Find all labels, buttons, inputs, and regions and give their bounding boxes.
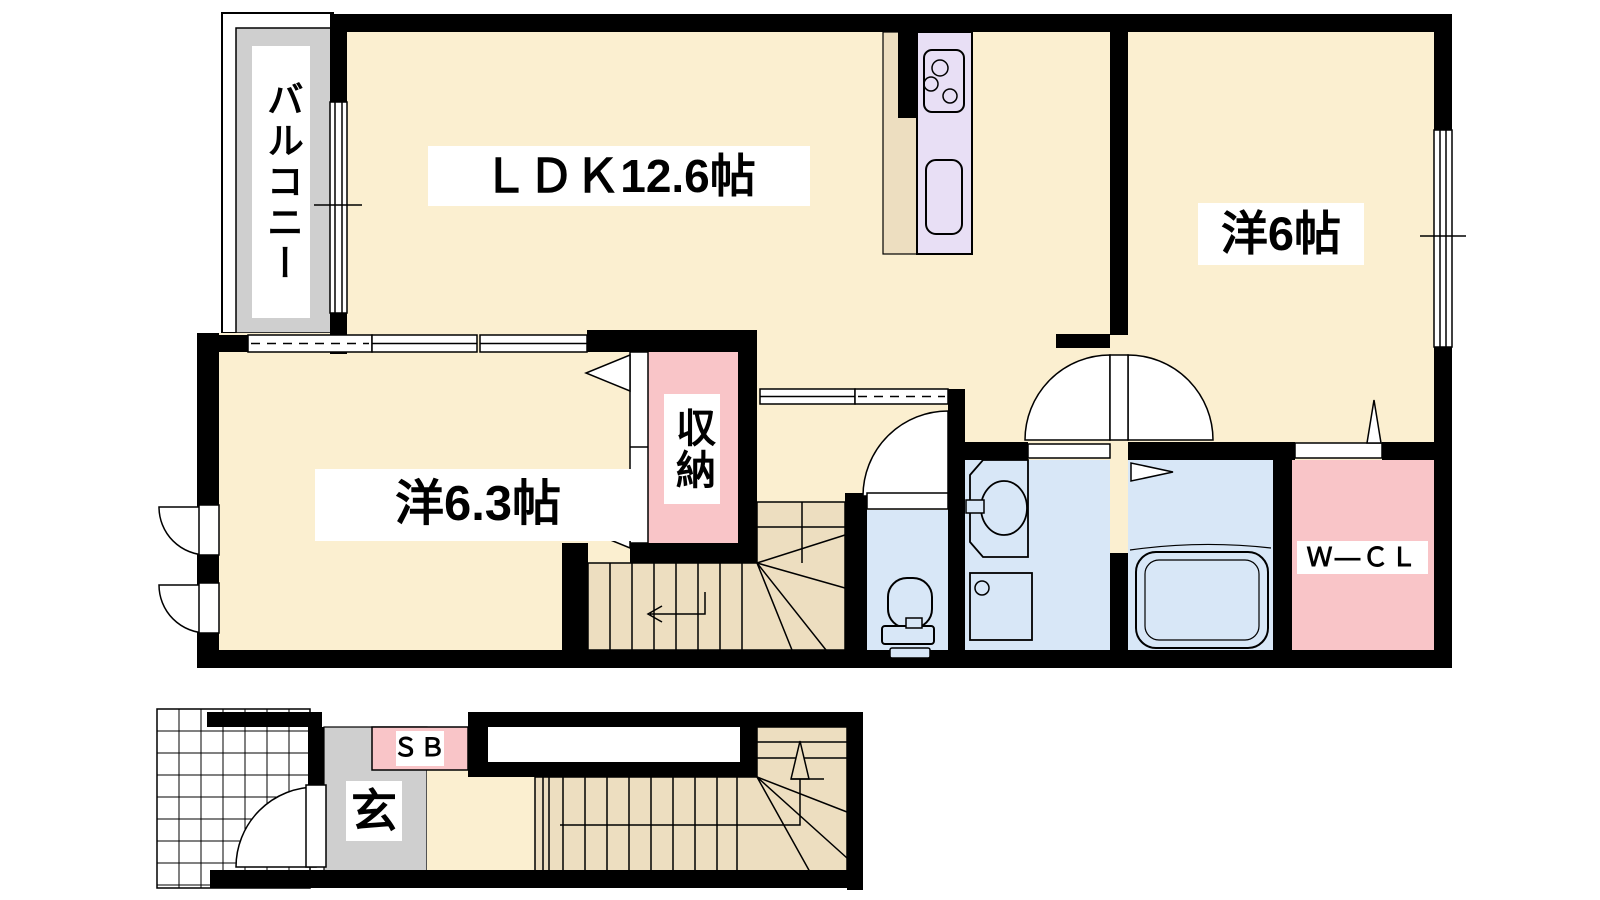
wall — [1273, 460, 1292, 650]
wall — [197, 650, 1452, 668]
wall — [488, 712, 857, 727]
exterior-door-leaf — [199, 505, 219, 555]
kitchen-sink-icon — [926, 160, 962, 234]
toilet-base — [890, 648, 930, 658]
floor-plan-canvas: バルコニー ＬＤＫ12.6帖 洋6帖 洋6.3帖 収納 Ｗ—ＣＬ ＳＢ 玄 — [0, 0, 1600, 900]
wall — [330, 14, 1452, 32]
faucet-icon — [966, 500, 984, 513]
wall — [948, 460, 965, 650]
wall — [1128, 442, 1295, 460]
wall — [587, 330, 757, 352]
door-opening — [1028, 444, 1110, 458]
storage-label: 収納 — [664, 394, 720, 504]
toilet-lid — [906, 618, 922, 628]
wall — [210, 870, 863, 888]
wall — [740, 727, 757, 777]
wall — [948, 389, 965, 460]
floor-1-plan — [157, 709, 863, 890]
entrance-door-leaf — [306, 785, 326, 867]
wall — [738, 330, 757, 563]
entrance-label: 玄 — [346, 781, 402, 841]
wall — [308, 727, 324, 787]
vanity-sink-icon — [981, 481, 1027, 535]
wall — [845, 493, 867, 650]
bathtub-icon — [1130, 544, 1271, 648]
balcony-window — [330, 102, 347, 313]
dashed-opening — [855, 389, 948, 404]
wcl-sliding-door — [1295, 443, 1382, 458]
balcony-label: バルコニー — [252, 46, 310, 318]
washroom-fixtures — [966, 460, 1032, 640]
wall — [1382, 442, 1434, 460]
kitchen-stove-icon — [924, 50, 964, 112]
washing-machine-knob — [975, 581, 989, 595]
wall — [330, 14, 347, 102]
ldk-label: ＬＤＫ12.6帖 — [428, 146, 810, 206]
floor-plan-drawing — [0, 0, 1600, 900]
bedroom-left-label: 洋6.3帖 — [315, 469, 641, 541]
wall — [847, 712, 863, 890]
wall — [468, 712, 488, 777]
walk-in-closet-label: Ｗ—ＣＬ — [1297, 541, 1428, 574]
wall — [965, 442, 1028, 460]
wall — [1110, 553, 1128, 650]
kitchen-unit — [883, 32, 972, 254]
bedroom-right-label: 洋6帖 — [1198, 203, 1364, 265]
door-leaf — [1110, 355, 1128, 440]
bathtub-outer — [1136, 552, 1268, 648]
exterior-door-leaf — [199, 583, 219, 633]
wall — [488, 762, 743, 777]
corridor-floor — [427, 770, 535, 872]
wall — [898, 32, 917, 118]
wall — [630, 543, 757, 563]
toilet-door-leaf — [867, 493, 948, 509]
wall — [1056, 334, 1110, 348]
east-window — [1434, 130, 1452, 347]
wall — [219, 335, 248, 352]
floor-2-plan — [159, 13, 1466, 668]
wall — [562, 543, 588, 650]
shoe-box-label: ＳＢ — [396, 731, 444, 766]
wall — [1110, 14, 1128, 335]
wall — [207, 712, 322, 727]
